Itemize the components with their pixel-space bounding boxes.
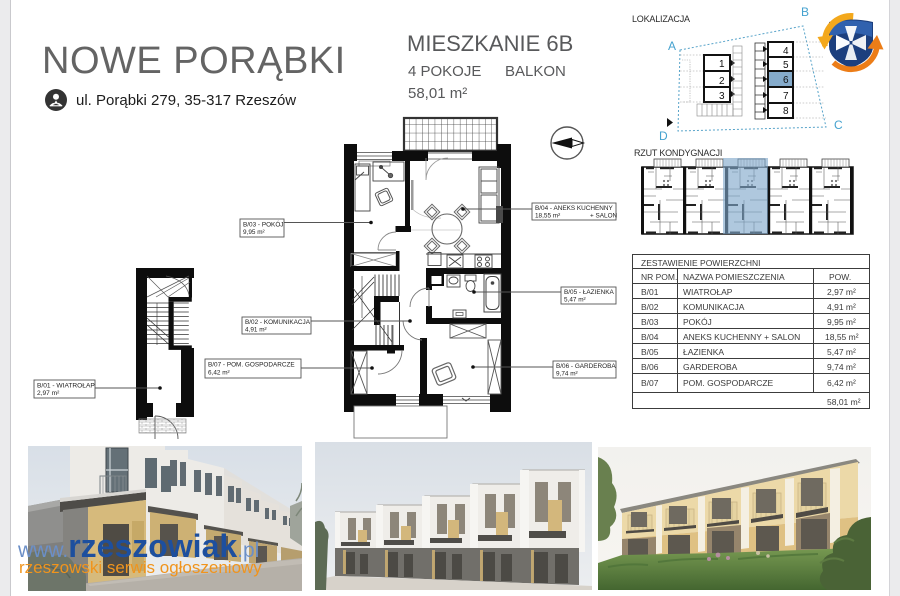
svg-text:8: 8 [783, 106, 789, 117]
svg-text:4,91 m²: 4,91 m² [245, 327, 267, 334]
svg-text:6,42 m²: 6,42 m² [208, 370, 230, 377]
svg-text:B: B [801, 5, 809, 19]
svg-text:A: A [668, 39, 676, 53]
svg-text:B/07 - POM. GOSPODARCZE: B/07 - POM. GOSPODARCZE [208, 362, 295, 369]
svg-text:9,74 m²: 9,74 m² [556, 371, 578, 378]
svg-text:2,97 m²: 2,97 m² [37, 390, 60, 397]
svg-text:5,47 m²: 5,47 m² [564, 297, 586, 304]
svg-text:C: C [834, 118, 843, 132]
svg-text:B/02 - KOMUNIKACJA: B/02 - KOMUNIKACJA [245, 319, 311, 326]
svg-text:+ SALON: + SALON [590, 213, 618, 220]
svg-text:4: 4 [783, 46, 789, 57]
svg-text:D: D [659, 129, 668, 143]
svg-text:3: 3 [719, 91, 725, 102]
svg-text:5: 5 [783, 60, 789, 71]
svg-text:B/04 - ANEKS KUCHENNY: B/04 - ANEKS KUCHENNY [535, 205, 614, 212]
svg-text:6: 6 [783, 75, 789, 86]
svg-text:B/01 - WIATROŁAP: B/01 - WIATROŁAP [37, 383, 95, 390]
svg-text:1: 1 [719, 59, 725, 70]
svg-text:B/03 - POKÓJ: B/03 - POKÓJ [243, 220, 284, 229]
svg-text:2: 2 [719, 76, 725, 87]
svg-text:9,95 m²: 9,95 m² [243, 229, 265, 236]
svg-text:7: 7 [783, 91, 789, 102]
svg-text:B/05 - ŁAZIENKA: B/05 - ŁAZIENKA [564, 289, 614, 296]
svg-text:B/06 - GARDEROBA: B/06 - GARDEROBA [556, 363, 616, 370]
svg-text:18,55 m²: 18,55 m² [535, 213, 560, 220]
